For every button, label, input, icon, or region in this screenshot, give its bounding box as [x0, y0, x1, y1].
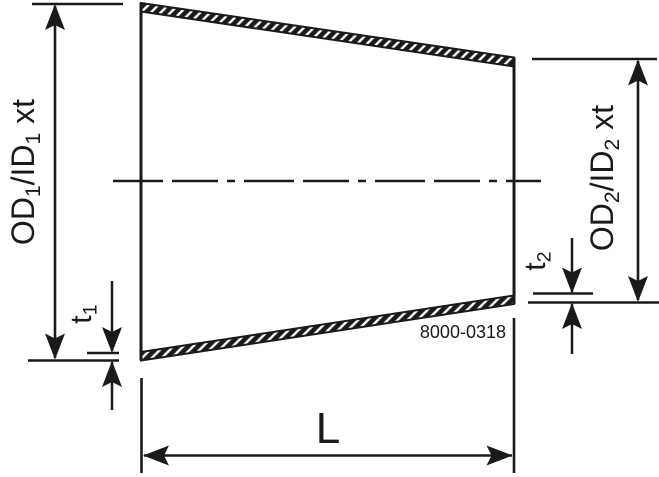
drawing-number: 8000-0318 [420, 322, 506, 342]
t1-label: t1 [65, 304, 102, 323]
reducer-body [113, 3, 541, 361]
od2-label: OD2/ID2 xt [584, 105, 624, 251]
reducer-technical-drawing: OD1/ID1 xt t1 OD2/ID2 xt t2 L 8000-0318 [0, 0, 659, 477]
reducer-top-wall [141, 3, 514, 67]
t2-label: t2 [519, 251, 556, 270]
drawing-area: OD1/ID1 xt t1 OD2/ID2 xt t2 L 8000-0318 [0, 0, 659, 477]
length-label: L [316, 404, 340, 453]
od1-dimension [28, 4, 123, 361]
od1-label: OD1/ID1 xt [5, 99, 45, 245]
